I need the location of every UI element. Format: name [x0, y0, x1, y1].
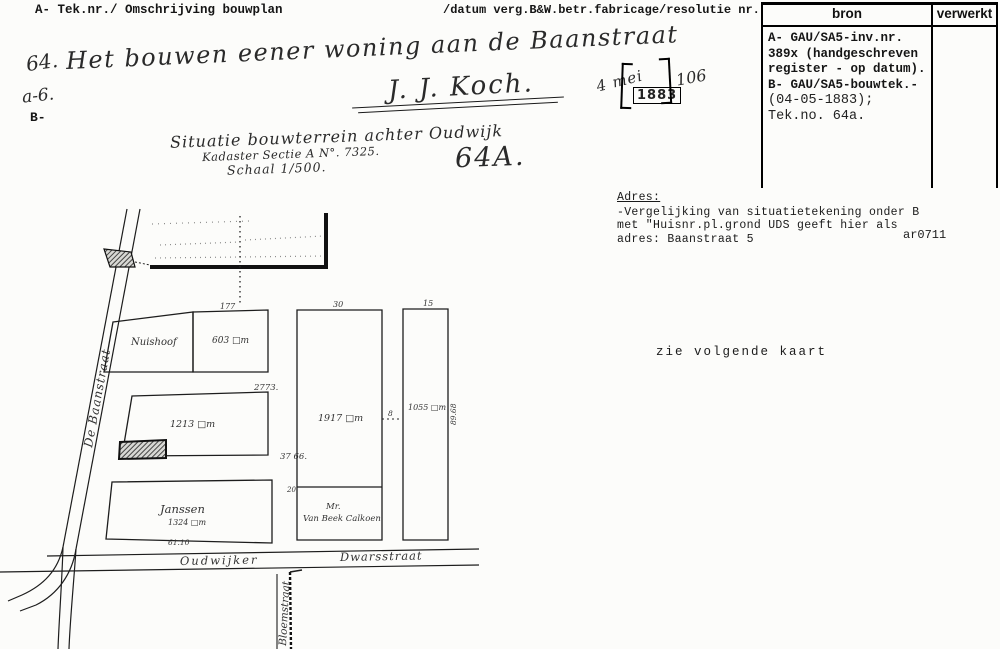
plot-d-area: 1917 □m — [318, 413, 363, 424]
dim-3766: 37 66. — [280, 452, 307, 462]
road-line — [58, 547, 63, 649]
plot-c-area: 1213 □m — [170, 419, 215, 430]
top-block-edge — [150, 213, 326, 267]
dim-20: 20 — [286, 486, 296, 494]
plot-e-area: 1055 □m — [408, 403, 446, 412]
plot-a-label: Nuishoof — [130, 337, 179, 348]
dim-width-e: 15 — [423, 299, 433, 308]
road-curve — [8, 547, 63, 601]
road-left-lines — [8, 209, 140, 649]
plot-f-name: Janssen — [158, 502, 205, 516]
dim-width-d: 30 — [333, 300, 343, 309]
stipple-line — [152, 221, 250, 224]
plot-f-area: 1324 □m — [168, 518, 206, 527]
plot-b-area: 603 □m — [212, 336, 249, 346]
street-label-baanstraat: De Baanstraat — [81, 347, 113, 449]
dim-height-e: 89.68 — [449, 403, 458, 425]
street-label-dwarsstraat: Dwarsstraat — [339, 549, 423, 564]
dim-bottom-f: 61.10 — [168, 538, 190, 547]
situation-map: De Baanstraat Nuishoof 603 □m 177 2773. … — [0, 0, 1000, 649]
top-block-stipple — [152, 221, 325, 258]
plot-g-title: Mr. — [325, 502, 341, 512]
stipple-line — [245, 236, 324, 240]
dotted-connector — [135, 262, 150, 265]
lane-corner — [290, 570, 302, 572]
plot-e-outline — [403, 309, 448, 540]
proposed-building — [119, 440, 166, 459]
road-curve — [20, 549, 76, 611]
dim-gap-de: 8 — [388, 409, 393, 418]
scanned-document: A- Tek.nr./ Omschrijving bouwplan /datum… — [0, 0, 1000, 649]
stipple-line — [160, 242, 240, 245]
road-corner-hatch — [104, 249, 135, 267]
dim-top-b: 177 — [220, 302, 236, 311]
plot-g-name: Van Beek Calkoen — [303, 514, 381, 524]
street-label-oudwijker: Oudwijker — [180, 553, 259, 568]
